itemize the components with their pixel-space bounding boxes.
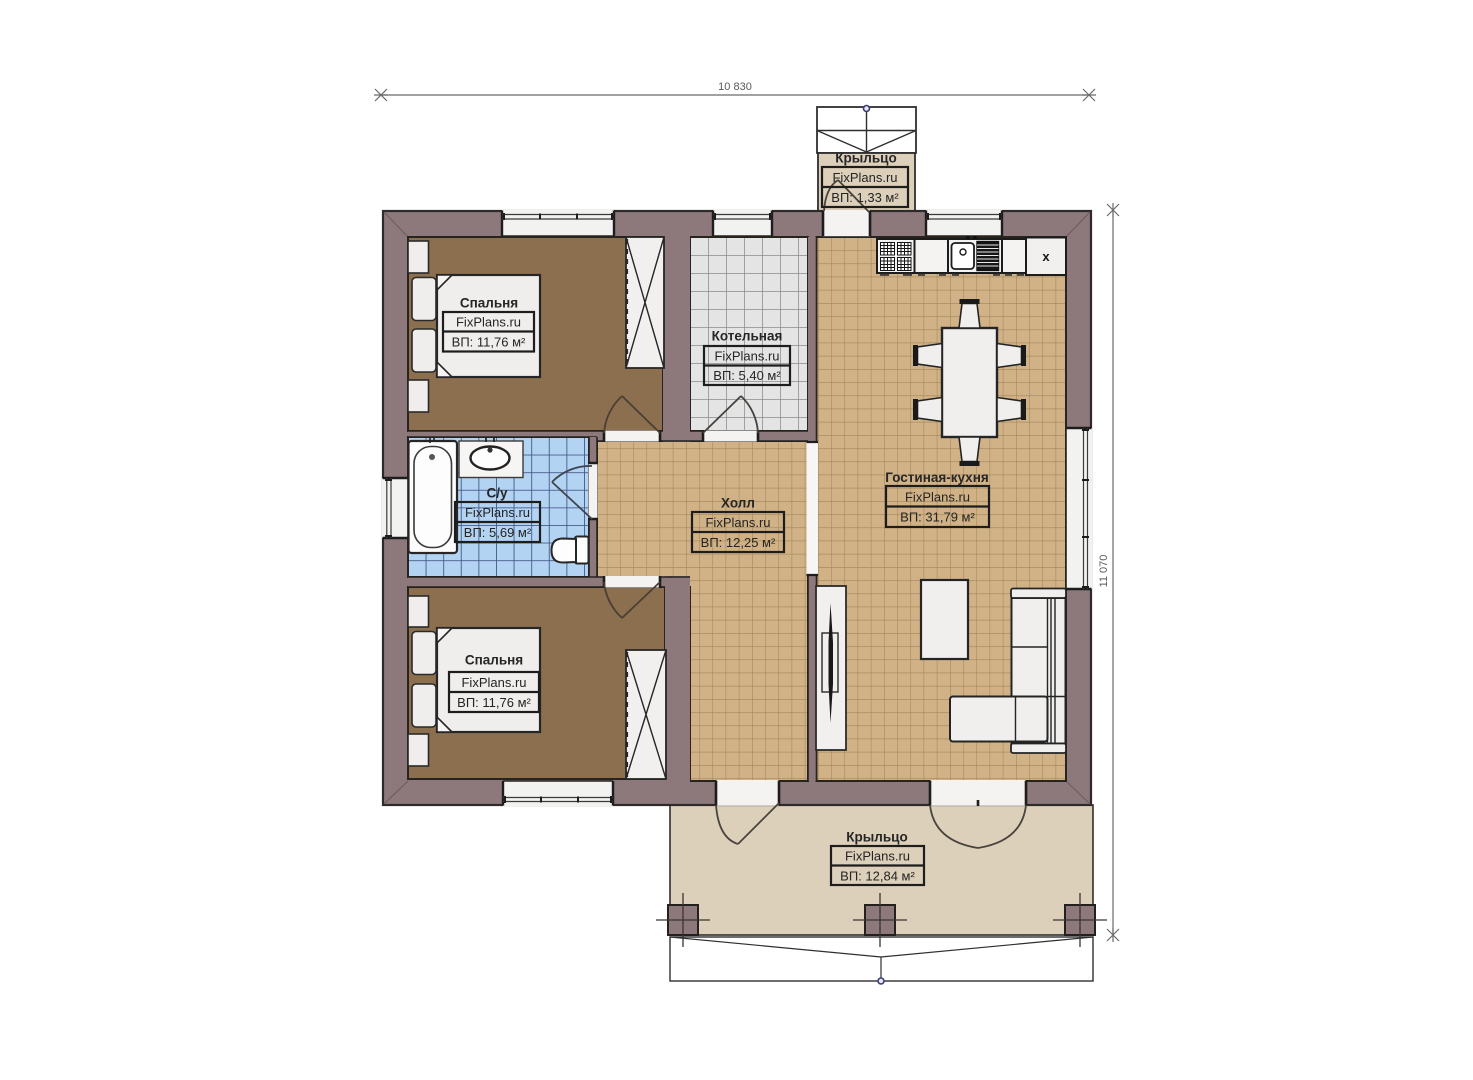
svg-text:Спальня: Спальня	[465, 653, 523, 668]
svg-text:FixPlans.ru: FixPlans.ru	[465, 505, 530, 520]
svg-text:ВП: 1,33 м²: ВП: 1,33 м²	[831, 190, 899, 205]
svg-text:ВП: 12,84 м²: ВП: 12,84 м²	[840, 869, 915, 884]
svg-text:FixPlans.ru: FixPlans.ru	[832, 170, 897, 185]
svg-text:С/у: С/у	[486, 486, 508, 501]
svg-text:ВП: 5,40 м²: ВП: 5,40 м²	[713, 368, 781, 383]
svg-text:Холл: Холл	[721, 496, 755, 511]
svg-text:FixPlans.ru: FixPlans.ru	[905, 490, 970, 505]
svg-text:ВП: 5,69 м²: ВП: 5,69 м²	[464, 525, 532, 540]
svg-text:11 070: 11 070	[1098, 555, 1110, 588]
svg-text:ВП: 31,79 м²: ВП: 31,79 м²	[900, 510, 975, 525]
svg-text:FixPlans.ru: FixPlans.ru	[461, 675, 526, 690]
svg-text:FixPlans.ru: FixPlans.ru	[705, 515, 770, 530]
svg-text:Котельная: Котельная	[712, 329, 783, 344]
svg-text:x: x	[1042, 249, 1050, 264]
svg-text:ВП: 12,25 м²: ВП: 12,25 м²	[701, 535, 776, 550]
svg-text:10 830: 10 830	[718, 81, 752, 93]
svg-text:ВП: 11,76 м²: ВП: 11,76 м²	[457, 695, 531, 710]
svg-text:Крыльцо: Крыльцо	[835, 151, 896, 166]
svg-text:Гостиная-кухня: Гостиная-кухня	[885, 470, 988, 485]
svg-text:Крыльцо: Крыльцо	[846, 830, 907, 845]
svg-text:ВП: 11,76 м²: ВП: 11,76 м²	[452, 335, 526, 350]
svg-text:Спальня: Спальня	[460, 296, 518, 311]
svg-text:FixPlans.ru: FixPlans.ru	[845, 849, 910, 864]
svg-text:FixPlans.ru: FixPlans.ru	[714, 349, 779, 364]
svg-text:FixPlans.ru: FixPlans.ru	[456, 315, 521, 330]
